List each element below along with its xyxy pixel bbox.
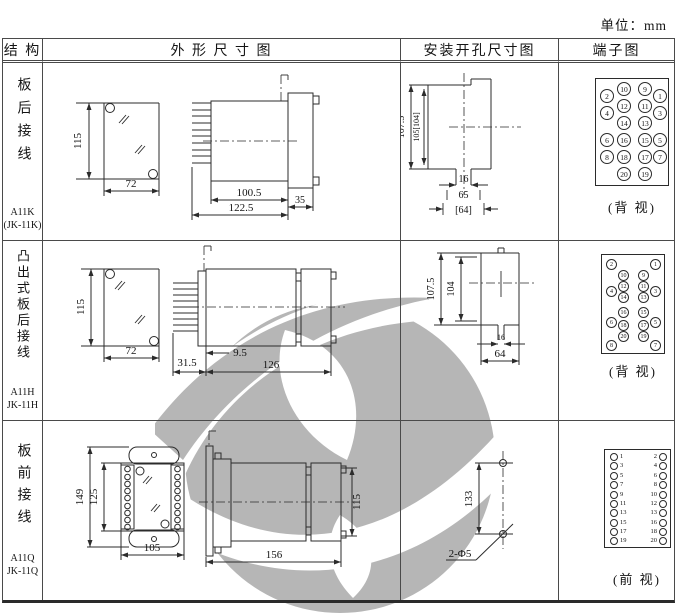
header-mounting: 安装开孔尺寸图 xyxy=(401,39,559,63)
header-structure: 结 构 xyxy=(3,39,43,63)
terminal-hole xyxy=(610,528,618,536)
row1-mounting-drawing: 107.5 105[104] 16 65 [64] xyxy=(401,63,558,240)
terminal-hole xyxy=(610,537,618,545)
terminal-15: 15 xyxy=(638,133,652,147)
terminal-17: 17 xyxy=(638,150,652,164)
dim-height-inner: 125 xyxy=(88,488,100,505)
row3-outline-drawing: 149 125 105 11 xyxy=(43,421,399,599)
row2-structure-label: 凸出式板后接线 xyxy=(13,249,32,361)
terminal-4: 4 xyxy=(606,286,617,297)
dim-span: 64 xyxy=(495,348,507,360)
terminal-10: 10 xyxy=(618,270,629,281)
row2-mounting-drawing: 107.5 104 16 64 xyxy=(401,241,558,420)
terminal-hole xyxy=(610,453,618,461)
row1-outline-drawing: 115 72 100.5 xyxy=(43,63,399,240)
terminal-num: 6 xyxy=(641,472,657,480)
dim-width: 105 xyxy=(144,542,161,554)
row2-mounting-cell: 107.5 104 16 64 xyxy=(401,241,559,421)
terminal-8: 8 xyxy=(606,340,617,351)
terminal-num: 20 xyxy=(641,537,657,545)
terminal-num: 16 xyxy=(641,519,657,527)
terminal-hole xyxy=(659,509,667,517)
terminal-6: 6 xyxy=(606,317,617,328)
terminal-16: 16 xyxy=(617,133,631,147)
terminal-num: 19 xyxy=(620,537,627,545)
dim-height: 115 xyxy=(75,298,87,315)
header-outline: 外 形 尺 寸 图 xyxy=(43,39,401,63)
terminal-9: 9 xyxy=(638,270,649,281)
terminal-hole xyxy=(659,453,667,461)
terminal-3: 3 xyxy=(650,286,661,297)
terminal-hole xyxy=(610,509,618,517)
terminal-num: 7 xyxy=(620,481,623,489)
row1-structure-cell: 板后接线 A11K (JK-11K) xyxy=(3,63,43,241)
dim-total: 156 xyxy=(266,549,283,561)
document-page: 单位：mm 结 构 外 形 尺 寸 图 安装开孔尺寸图 端子图 板后接线 A11… xyxy=(0,0,677,613)
row3-mounting-cell: 133 2-Φ5 xyxy=(401,421,559,600)
terminal-10: 10 xyxy=(617,82,631,96)
dim-height: 115 xyxy=(72,132,84,149)
dim-slot: 16 xyxy=(459,174,469,185)
row2-outline-drawing: 115 72 xyxy=(43,241,399,420)
terminal-5: 5 xyxy=(650,317,661,328)
row3-mounting-drawing: 133 2-Φ5 xyxy=(401,421,558,599)
terminal-hole xyxy=(659,537,667,545)
terminal-9: 9 xyxy=(638,82,652,96)
terminal-hole xyxy=(659,528,667,536)
dim-total: 126 xyxy=(263,359,280,371)
row1-terminal-cell: 2 4 6 8 10 12 14 16 18 20 9 11 13 15 17 … xyxy=(559,63,674,241)
row3-structure-cell: 板前接线 A11Q JK-11Q xyxy=(3,421,43,600)
terminal-num: 13 xyxy=(620,509,627,517)
row3-structure-label: 板前接线 xyxy=(13,443,33,531)
dim-cutout-outer: 107.5 xyxy=(401,116,407,139)
dim-span: 65 xyxy=(459,190,469,201)
row1-model: A11K (JK-11K) xyxy=(3,206,42,232)
terminal-2: 2 xyxy=(600,89,614,103)
dim-cutout-inner: 104 xyxy=(446,282,457,297)
spec-table: 结 构 外 形 尺 寸 图 安装开孔尺寸图 端子图 板后接线 A11K (JK-… xyxy=(2,38,675,603)
row2-terminal-cell: 2 4 6 8 10 12 14 16 18 20 9 11 13 15 17 … xyxy=(559,241,674,421)
terminal-7: 7 xyxy=(650,340,661,351)
terminal-num: 18 xyxy=(641,528,657,536)
terminal-2: 2 xyxy=(606,259,617,270)
row3-model: A11Q JK-11Q xyxy=(3,552,42,578)
header-terminal: 端子图 xyxy=(559,39,674,63)
terminal-18: 18 xyxy=(618,320,629,331)
row2-model: A11H JK-11H xyxy=(3,386,42,412)
terminal-hole xyxy=(659,491,667,499)
dim-total: 122.5 xyxy=(229,202,254,214)
terminal-8: 8 xyxy=(600,150,614,164)
row3-outline-cell: 149 125 105 11 xyxy=(43,421,401,600)
row3-terminal-cell: 1 3 5 7 9 11 13 15 17 19 2 4 6 8 10 12 1… xyxy=(559,421,674,600)
dim-flange: 35 xyxy=(295,195,305,206)
terminal-hole xyxy=(610,472,618,480)
row2-structure-cell: 凸出式板后接线 A11H JK-11H xyxy=(3,241,43,421)
terminal-hole xyxy=(659,500,667,508)
dim-span-alt: [64] xyxy=(455,205,472,216)
terminal-hole xyxy=(610,519,618,527)
terminal-3: 3 xyxy=(653,106,667,120)
terminal-num: 10 xyxy=(641,491,657,499)
terminal-7: 7 xyxy=(653,150,667,164)
terminal-17: 17 xyxy=(638,320,649,331)
terminal-14: 14 xyxy=(618,292,629,303)
terminal-num: 4 xyxy=(641,462,657,470)
terminal-13: 13 xyxy=(638,292,649,303)
row2-outline-cell: 115 72 xyxy=(43,241,401,421)
terminal-1: 1 xyxy=(650,259,661,270)
terminal-hole xyxy=(610,500,618,508)
terminal-num: 2 xyxy=(641,453,657,461)
view-caption: (背 视) xyxy=(595,197,669,216)
terminal-hole xyxy=(659,519,667,527)
terminal-hole xyxy=(659,481,667,489)
terminal-16: 16 xyxy=(618,307,629,318)
terminal-num: 12 xyxy=(641,500,657,508)
row1-structure-label: 板后接线 xyxy=(13,77,33,169)
terminal-num: 8 xyxy=(641,481,657,489)
terminal-block: 2 4 6 8 10 12 14 16 18 20 9 11 13 15 17 … xyxy=(601,254,665,354)
terminal-19: 19 xyxy=(638,331,649,342)
terminal-num: 13 xyxy=(641,509,657,517)
terminal-15: 15 xyxy=(638,307,649,318)
terminal-12: 12 xyxy=(618,281,629,292)
terminal-hole xyxy=(659,462,667,470)
terminal-1: 1 xyxy=(653,89,667,103)
row1-outline-cell: 115 72 100.5 xyxy=(43,63,401,241)
unit-label: 单位：mm xyxy=(600,14,667,34)
terminal-num: 17 xyxy=(620,528,627,536)
dim-pin: 31.5 xyxy=(177,357,197,369)
terminal-block: 1 3 5 7 9 11 13 15 17 19 2 4 6 8 10 12 1… xyxy=(604,449,671,548)
row1-mounting-cell: 107.5 105[104] 16 65 [64] xyxy=(401,63,559,241)
dim-cutout-inner: 105[104] xyxy=(412,112,421,142)
terminal-hole xyxy=(610,481,618,489)
terminal-20: 20 xyxy=(617,167,631,181)
dim-width: 72 xyxy=(126,345,137,357)
terminal-num: 11 xyxy=(620,500,626,508)
terminal-hole xyxy=(610,462,618,470)
terminal-num: 3 xyxy=(620,462,623,470)
dim-hole-spacing: 133 xyxy=(463,490,475,507)
terminal-6: 6 xyxy=(600,133,614,147)
terminal-14: 14 xyxy=(617,116,631,130)
terminal-20: 20 xyxy=(618,331,629,342)
dim-depth: 115 xyxy=(351,493,363,510)
dim-body: 100.5 xyxy=(237,187,262,199)
dim-width: 72 xyxy=(126,178,137,190)
terminal-19: 19 xyxy=(638,167,652,181)
terminal-12: 12 xyxy=(617,99,631,113)
terminal-num: 5 xyxy=(620,472,623,480)
dim-slot: 16 xyxy=(497,333,505,342)
hole-callout: 2-Φ5 xyxy=(449,548,472,560)
terminal-block: 2 4 6 8 10 12 14 16 18 20 9 11 13 15 17 … xyxy=(595,78,669,186)
terminal-hole xyxy=(610,491,618,499)
terminal-13: 13 xyxy=(638,116,652,130)
terminal-num: 9 xyxy=(620,491,623,499)
dim-height-outer: 149 xyxy=(74,488,86,505)
view-caption: (背 视) xyxy=(601,361,665,380)
view-caption: (前 视) xyxy=(597,569,677,588)
terminal-11: 11 xyxy=(638,281,649,292)
terminal-num: 15 xyxy=(620,519,627,527)
dim-offset: 9.5 xyxy=(233,347,247,359)
terminal-11: 11 xyxy=(638,99,652,113)
terminal-num: 1 xyxy=(620,453,623,461)
terminal-4: 4 xyxy=(600,106,614,120)
terminal-18: 18 xyxy=(617,150,631,164)
dim-cutout-outer: 107.5 xyxy=(426,278,437,301)
terminal-5: 5 xyxy=(653,133,667,147)
terminal-hole xyxy=(659,472,667,480)
